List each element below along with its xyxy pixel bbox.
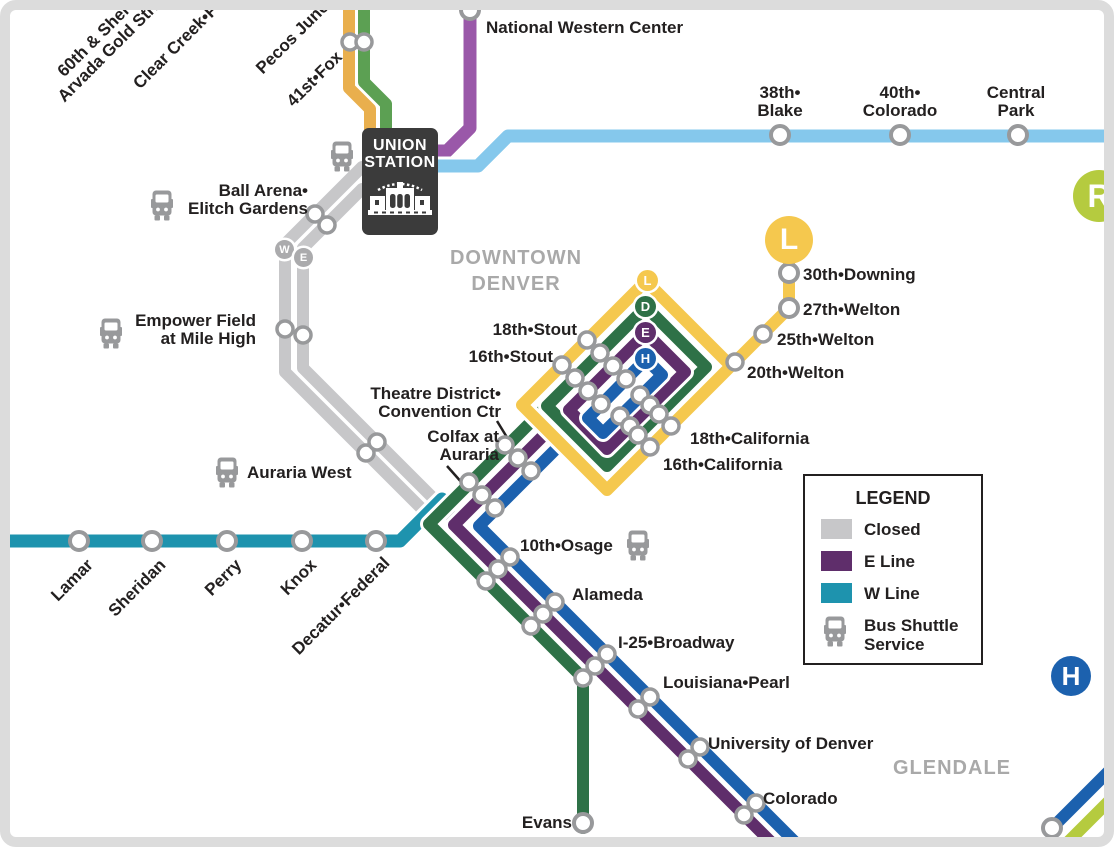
l-line-badge: L <box>765 216 813 264</box>
station-label-i25-broadway: I-25•Broadway <box>618 634 735 652</box>
station-label-colfax-auraria: Colfax atAuraria <box>427 428 499 464</box>
station-label-30th-downing: 30th•Downing <box>803 266 916 284</box>
bus-icon-ball-arena <box>151 189 173 221</box>
loop-e-badge: E <box>635 322 656 343</box>
rail-lines-canvas <box>0 0 1114 847</box>
area-label-glendale: GLENDALE <box>893 757 1011 780</box>
bus-icon-10th-osage <box>627 529 649 561</box>
station-label-louisiana-pearl: Louisiana•Pearl <box>663 674 790 692</box>
legend: LEGEND Closed E Line W Line Bus ShuttleS… <box>803 474 983 665</box>
station-label-national-western: National Western Center <box>486 19 683 37</box>
station-label-auraria-west: Auraria West <box>247 464 352 482</box>
station-label-ball-arena: Ball Arena•Elitch Gardens <box>188 182 308 218</box>
union-station-building-icon <box>368 176 432 218</box>
union-station-name-line1: UNION <box>362 137 438 154</box>
station-label-10th-osage: 10th•Osage <box>520 537 613 555</box>
bus-icon-auraria-west <box>216 456 238 488</box>
loop-l-badge: L <box>637 270 658 291</box>
transit-map: UNION STATION L R H L D E H W <box>0 0 1114 847</box>
legend-swatch-w-line <box>821 583 852 603</box>
legend-bus-icon <box>824 615 846 647</box>
h-line-badge: H <box>1051 656 1091 696</box>
legend-label-w-line: W Line <box>864 584 920 603</box>
station-label-25th-welton: 25th•Welton <box>777 331 874 349</box>
legend-label-e-line: E Line <box>864 552 915 571</box>
loop-h-badge: H <box>635 348 656 369</box>
closed-e-badge: E <box>294 248 313 267</box>
station-label-evans: Evans <box>522 814 572 832</box>
bus-icon-union-station <box>331 140 353 172</box>
legend-swatch-closed <box>821 519 852 539</box>
loop-d-badge: D <box>635 296 656 317</box>
station-label-colorado: Colorado <box>763 790 838 808</box>
closed-w-badge: W <box>275 240 294 259</box>
station-label-18th-california: 18th•California <box>690 430 809 448</box>
station-label-16th-california: 16th•California <box>663 456 782 474</box>
station-label-27th-welton: 27th•Welton <box>803 301 900 319</box>
station-label-16th-stout: 16th•Stout <box>469 348 553 366</box>
legend-title: LEGEND <box>805 488 981 509</box>
union-station-name-line2: STATION <box>362 154 438 171</box>
station-label-40th-colorado: 40th•Colorado <box>863 84 938 120</box>
station-label-university-denver: University of Denver <box>708 735 873 753</box>
station-label-18th-stout: 18th•Stout <box>493 321 577 339</box>
legend-label-closed: Closed <box>864 520 921 539</box>
station-label-alameda: Alameda <box>572 586 643 604</box>
legend-label-bus-shuttle: Bus ShuttleService <box>864 616 958 654</box>
n-line <box>437 6 470 151</box>
station-label-theatre-district: Theatre District•Convention Ctr <box>370 385 501 421</box>
station-label-38th-blake: 38th•Blake <box>757 84 802 120</box>
area-label-downtown: DOWNTOWN DENVER <box>450 245 582 297</box>
station-label-20th-welton: 20th•Welton <box>747 364 844 382</box>
station-label-central-park: CentralPark <box>987 84 1046 120</box>
legend-swatch-e-line <box>821 551 852 571</box>
station-label-empower-field: Empower Fieldat Mile High <box>135 312 256 348</box>
rail-lines <box>8 4 1114 847</box>
union-station-box: UNION STATION <box>362 128 438 235</box>
bus-icon-empower-field <box>100 317 122 349</box>
